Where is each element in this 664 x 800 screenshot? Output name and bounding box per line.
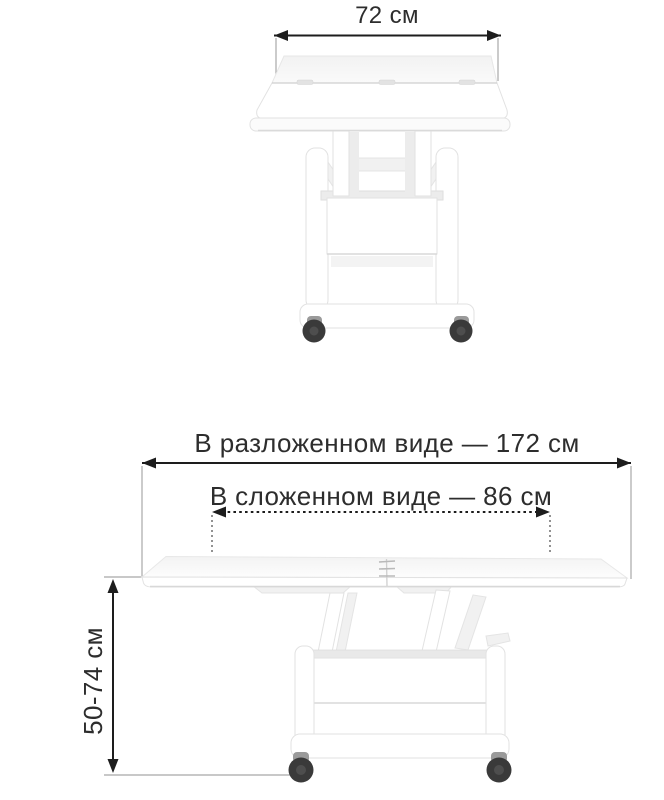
caster-hub: [457, 327, 466, 336]
tabletop-edge: [142, 577, 627, 587]
fold-seam: [387, 559, 388, 586]
arrowhead-right-icon: [487, 30, 501, 41]
arrowhead-up-icon: [108, 579, 119, 593]
arrowhead-left-icon: [142, 458, 156, 469]
lift-leg-right-rear: [455, 595, 486, 650]
fold-hinge: [379, 561, 395, 562]
side-view: В разложенном виде — 172 см В сложенном …: [0, 400, 664, 800]
caster-hub: [296, 765, 306, 775]
product-dimensions-diagram: 72 см: [0, 0, 664, 800]
lift-post-right: [415, 130, 431, 196]
folded-width-label: В сложенном виде — 86 см: [210, 481, 552, 511]
arrowhead-right-icon: [617, 458, 631, 469]
table-front-illustration: [250, 56, 510, 343]
corner-column-left: [306, 148, 328, 309]
post-arm-right: [486, 633, 510, 646]
unfolded-width-label: В разложенном виде — 172 см: [194, 428, 579, 458]
front-view: 72 см: [0, 0, 664, 400]
width-dimension-label: 72 см: [355, 2, 419, 29]
lift-post-left: [333, 130, 349, 196]
height-dimension: 50-74 см: [78, 579, 119, 773]
corner-column-right: [436, 148, 458, 309]
fold-hinge: [379, 569, 395, 570]
lift-post-inner-left: [348, 132, 359, 194]
fold-hinge: [297, 80, 313, 85]
caster-hub: [310, 327, 319, 336]
base-platform: [291, 734, 509, 758]
base-platform: [300, 304, 474, 328]
base-box-recess: [331, 256, 433, 267]
height-label: 50-74 см: [78, 627, 108, 735]
fold-hinge: [459, 80, 475, 85]
lift-post-inner-right: [405, 132, 416, 194]
arrowhead-down-icon: [108, 759, 119, 773]
lift-leg-right-front: [422, 590, 450, 652]
base-box-panel: [327, 198, 437, 254]
unfolded-width-dimension: В разложенном виде — 172 см: [142, 428, 631, 469]
width-dimension: 72 см: [274, 2, 501, 41]
caster-hub: [494, 765, 504, 775]
base-box-rim: [303, 650, 492, 658]
table-side-illustration: [142, 557, 627, 783]
fold-hinge: [379, 80, 395, 85]
folded-width-dimension: В сложенном виде — 86 см: [210, 481, 552, 518]
tabletop-edge: [250, 118, 510, 131]
base-box-panel: [312, 658, 487, 703]
tabletop-surface: [142, 557, 627, 579]
tabletop-back-half: [272, 56, 497, 83]
tabletop-front-half: [257, 83, 508, 119]
